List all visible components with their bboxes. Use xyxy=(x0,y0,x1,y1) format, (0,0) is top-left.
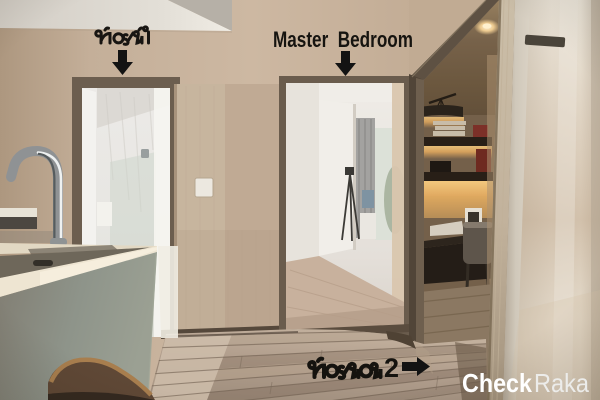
svg-text:Raka: Raka xyxy=(534,368,589,398)
svg-text:2: 2 xyxy=(384,353,399,383)
svg-text:Master Bedroom: Master Bedroom xyxy=(273,27,413,52)
svg-text:Check: Check xyxy=(462,368,532,398)
